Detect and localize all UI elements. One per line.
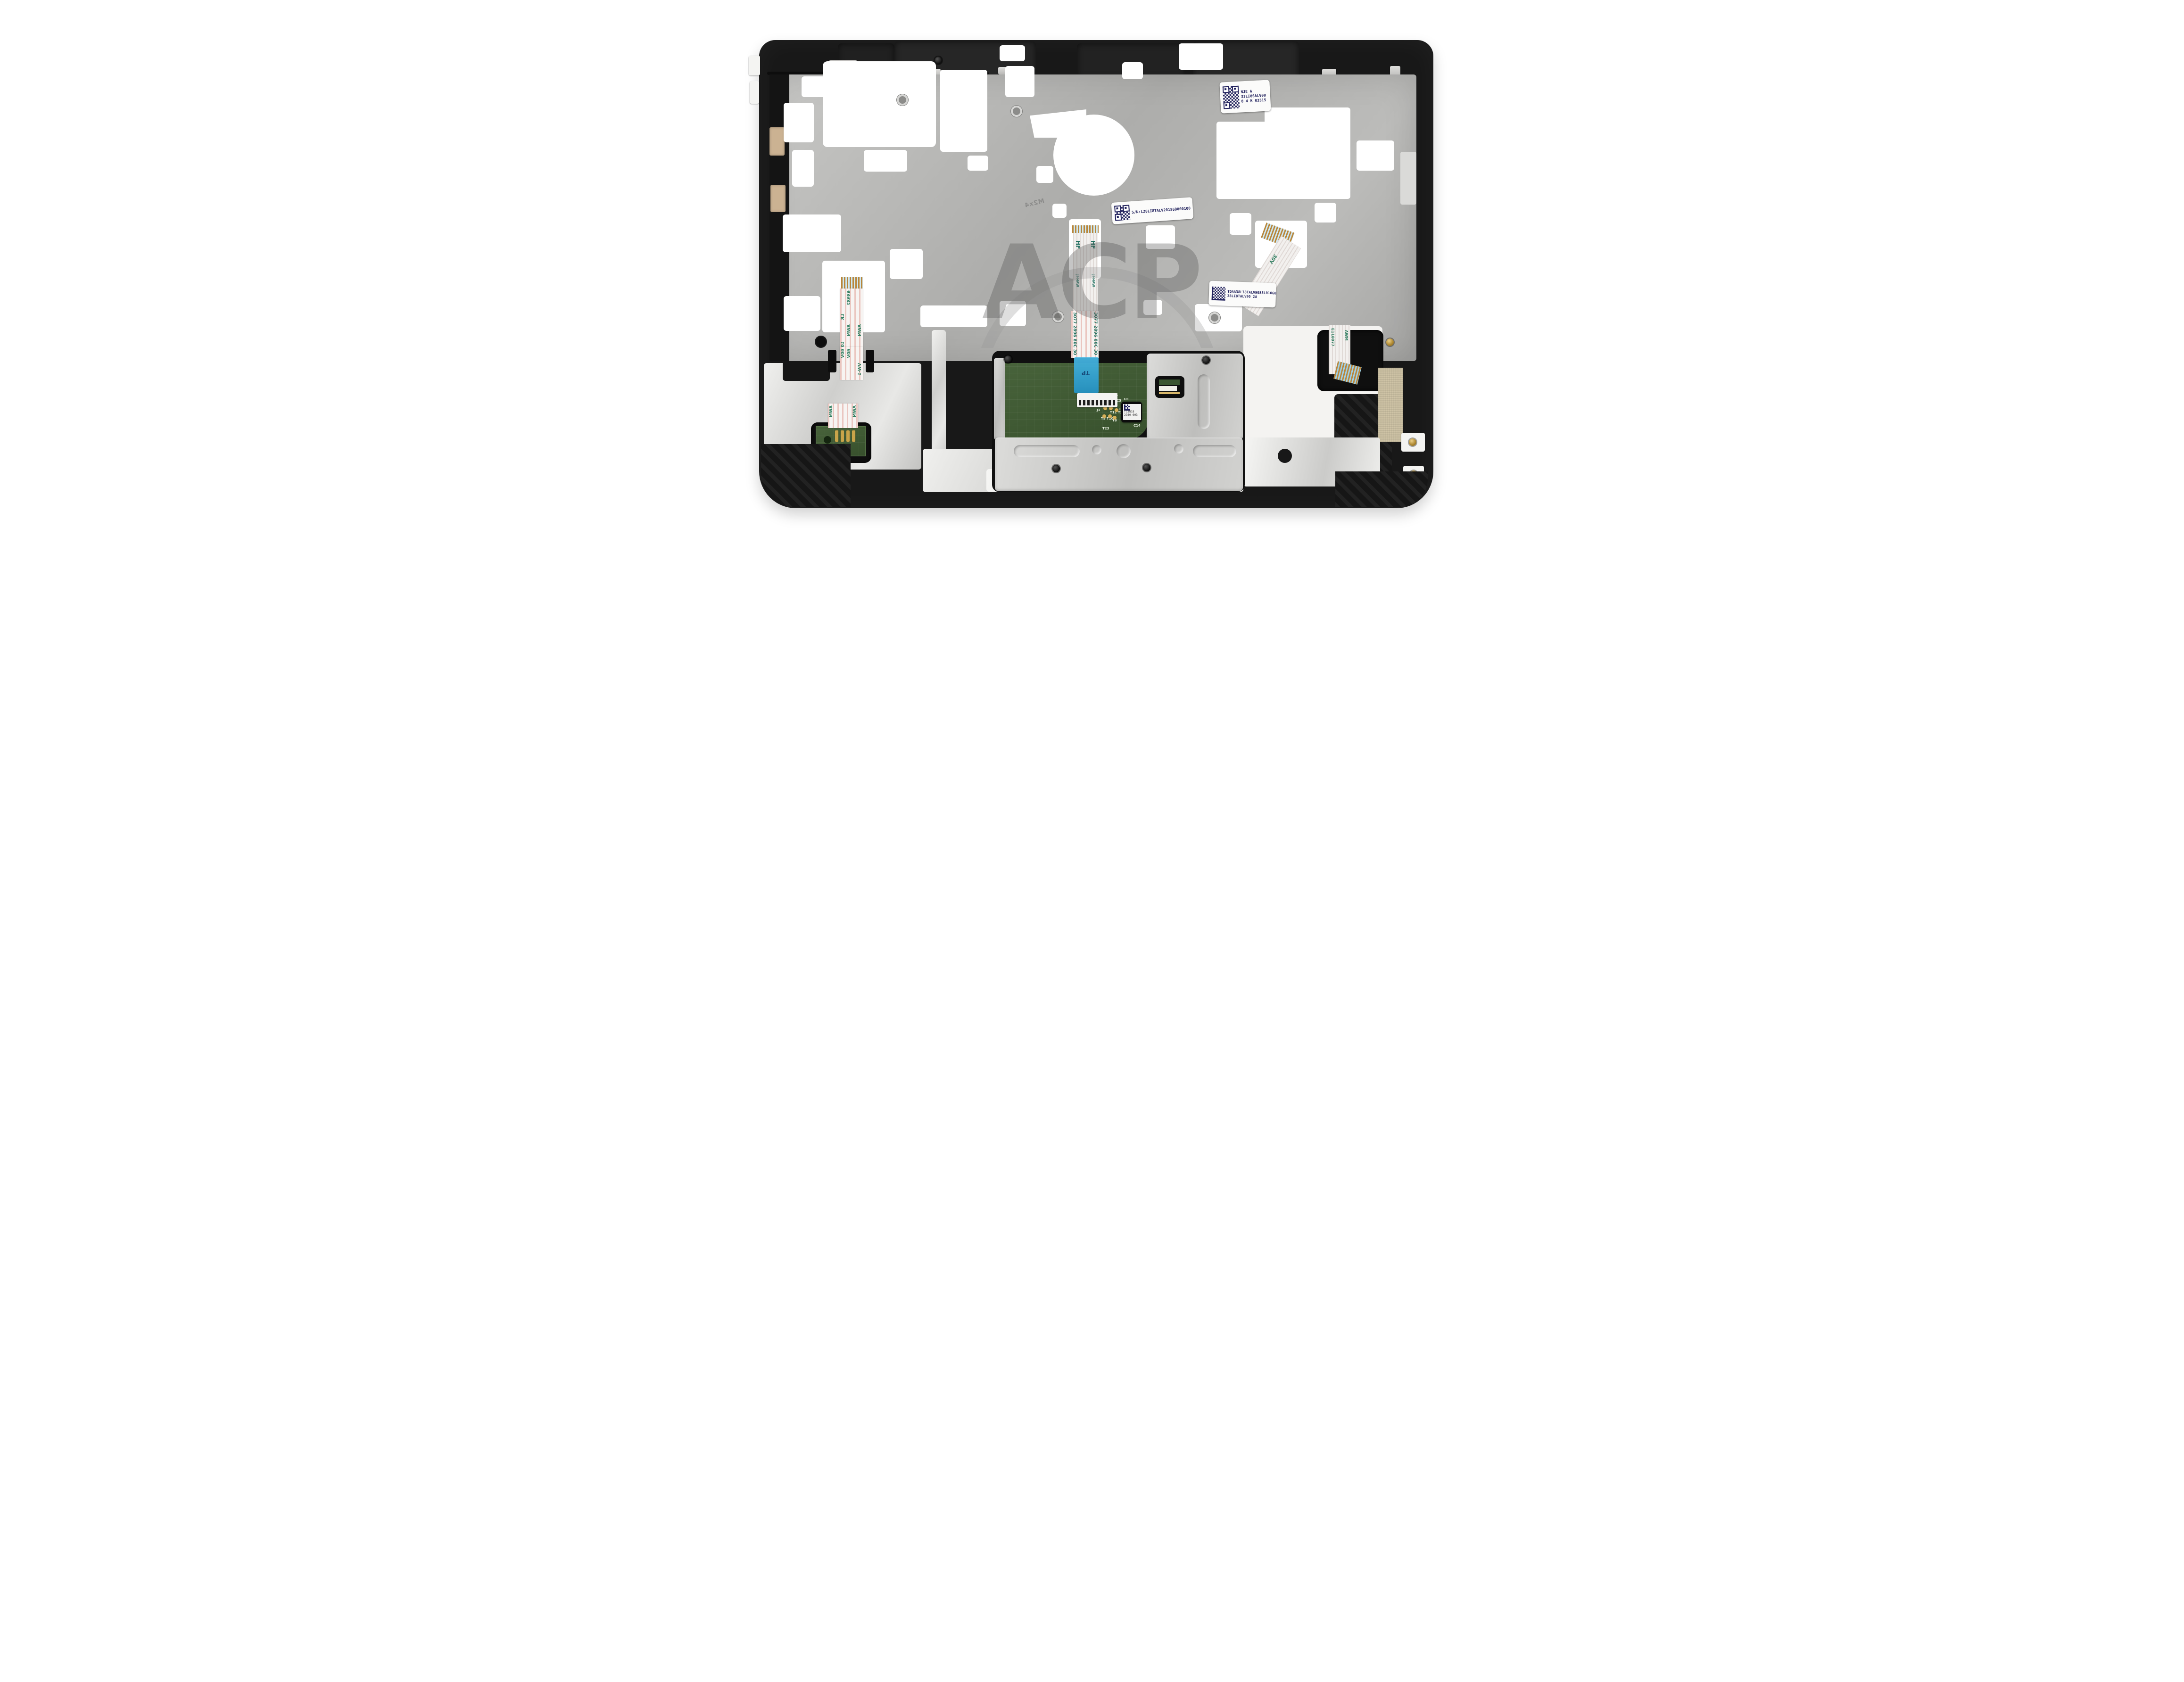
datamatrix-icon <box>1212 286 1226 300</box>
silkscreen-c14: C14 <box>1133 424 1141 428</box>
ribbon-marking: AWM <box>829 405 834 417</box>
ribbon-marking-specs: 3077 2896 80C 30 <box>1072 312 1077 355</box>
bracket-emboss-circle <box>1174 444 1183 453</box>
ribbon-marking-lr: LR <box>841 314 845 320</box>
ribbon-marking-awm: AWM <box>847 324 852 336</box>
sticker-line: 8 4 K 03315 <box>1241 98 1266 104</box>
shield-cutout <box>968 156 988 171</box>
rubber-grommet-icon <box>815 336 827 348</box>
shield-cutout <box>1146 225 1175 249</box>
screw-hole-grommet-icon <box>897 94 908 106</box>
photo-laptop-palmrest: M2x4 CN1 AWM AWM <box>722 0 1462 569</box>
tape-marking-tp: TP <box>1082 370 1090 376</box>
solder-pad <box>835 430 838 442</box>
test-point <box>1102 414 1106 418</box>
shield-cutout <box>823 61 936 147</box>
bracket-emboss-circle <box>1092 445 1101 454</box>
shield-cutout <box>890 249 923 279</box>
touchpad-screw-icon <box>1052 465 1060 472</box>
ribbon-marking-specs: 3077 2896 80C 30 <box>1093 312 1098 355</box>
shield-cutout <box>920 305 987 327</box>
corner-ribs-right <box>1335 471 1428 507</box>
ribbon-marking-code: E118077 <box>1331 328 1335 346</box>
fabric-tape <box>1378 368 1403 442</box>
left-ribbon-fingers <box>841 277 863 289</box>
qr-code-icon <box>1114 205 1130 221</box>
bracket-emboss-circle <box>1117 444 1131 458</box>
touchpad-ffc-connector <box>1077 393 1117 407</box>
bracket-emboss <box>1198 374 1210 429</box>
shield-cutout <box>864 150 907 172</box>
touchpad-ribbon-upper: 3077 2896 80C 30 3077 2896 80C 30 <box>1071 311 1099 358</box>
screw-hole-grommet-icon <box>1209 312 1220 323</box>
ribbon-marking-code: 63982 <box>847 290 852 305</box>
bracket-c-cutout <box>1155 376 1184 398</box>
silkscreen-j1: J1 <box>1097 408 1100 412</box>
module-part-sticker: TDAA38LI8TALV9085L01068 38LI8TALV90 2A <box>1208 281 1276 308</box>
touchpad-ribbon-blue-tape: TP <box>1074 357 1099 393</box>
speaker-serial-sticker: NJE A 3ILI8SALV00 8 4 K 03315 <box>1219 80 1271 113</box>
solder-pad <box>846 430 850 442</box>
foam-pad <box>769 127 785 156</box>
touchpad-bracket-left-wing <box>994 358 1005 439</box>
left-ribbon-lower: 60V 60V VW-1 <box>840 347 863 380</box>
solder-pad <box>852 430 855 442</box>
shield-cutout <box>1357 140 1394 171</box>
ribbon-marking-volt: 30V <box>1268 253 1278 264</box>
shield-cutout <box>1143 300 1162 315</box>
ribbon-marking: AWM <box>852 405 857 417</box>
test-point <box>1108 414 1112 418</box>
shield-cutout <box>940 70 987 152</box>
hinge-tab-left-lower <box>750 81 759 104</box>
shield-cutout <box>1036 166 1053 183</box>
ribbon-clamp <box>866 350 874 372</box>
bracket-slot <box>1014 445 1080 457</box>
threaded-insert-icon <box>1386 338 1394 346</box>
shield-cutout-paddle-circle <box>1053 115 1134 196</box>
pcb-hole <box>824 436 831 444</box>
touchpad-screw-icon <box>1202 356 1210 364</box>
test-point <box>1115 408 1118 412</box>
hinge-tab-left-upper <box>749 56 760 75</box>
touchpad-bracket-right <box>1147 354 1243 440</box>
touchpad-controller-chip: TC3818 2980-003 <box>1121 402 1142 422</box>
shield-tape-strip <box>1400 152 1416 205</box>
ribbon-marking-hf: HF <box>1075 240 1081 249</box>
screw-hole-grommet-icon <box>1011 106 1022 117</box>
corner-ribs-left <box>761 444 851 507</box>
shield-cutout <box>1315 203 1336 223</box>
test-point <box>1113 416 1117 420</box>
ribbon-marking-volt: 60V <box>847 349 852 358</box>
ribbon-marking-awm: AWM <box>1344 330 1348 341</box>
ribbon-clamp <box>828 350 836 372</box>
ribbon-marking-volt: 60V <box>841 349 845 358</box>
foam-pad <box>770 185 786 212</box>
solder-pad <box>841 430 844 442</box>
shield-cutout <box>792 150 814 187</box>
keyboard-ribbon-body: HF HF JI-HAW JI-HAW <box>1073 233 1098 313</box>
shield-cutout <box>1000 301 1026 326</box>
shield-cutout <box>1230 213 1251 235</box>
foil-notch <box>783 361 830 381</box>
qr-code-icon <box>1223 86 1240 109</box>
ribbon-marking-maker: JI-HAW <box>1075 274 1079 287</box>
shield-cutout <box>1265 107 1350 199</box>
shield-cutout <box>1122 62 1143 79</box>
ribbon-marking-vw: VW-1 <box>858 363 862 376</box>
foil-hole <box>1278 449 1292 463</box>
touchpad-screw-icon <box>1143 464 1150 471</box>
touchpad-screw-icon <box>1004 355 1012 363</box>
ribbon-marking-hf: HF <box>1090 240 1096 249</box>
shield-cutout <box>1052 204 1067 218</box>
shield-cutout <box>784 296 820 331</box>
silkscreen-t23: T23 <box>1102 427 1109 430</box>
silkscreen-u1: U1 <box>1124 397 1129 401</box>
chip-label-line2: 2980-003 <box>1124 414 1140 417</box>
speaker-screw-icon <box>935 57 942 64</box>
ribbon-marking-awm: AWM <box>858 324 862 336</box>
ribbon-marking-maker: JI-HAW <box>1092 274 1095 287</box>
connector-teeth <box>1079 400 1116 405</box>
bracket-slot <box>1193 445 1236 457</box>
shield-cutout <box>1000 45 1025 61</box>
shield-cutout <box>1005 66 1034 97</box>
click-button-ribbon: AWM AWM <box>828 404 858 428</box>
keyboard-ribbon-fingers <box>1072 225 1099 233</box>
shield-cutout <box>1179 43 1223 70</box>
shield-cutout <box>783 214 841 252</box>
shield-cutout <box>784 103 814 142</box>
touchpad-bracket-lower <box>995 437 1243 491</box>
chip-label: TC3818 2980-003 <box>1123 404 1141 420</box>
corner-screw-icon <box>1409 438 1416 446</box>
screw-hole-grommet-icon <box>1052 311 1064 322</box>
serial-number-text: S/N:L28LI8TALV20186B000100 <box>1132 206 1191 214</box>
